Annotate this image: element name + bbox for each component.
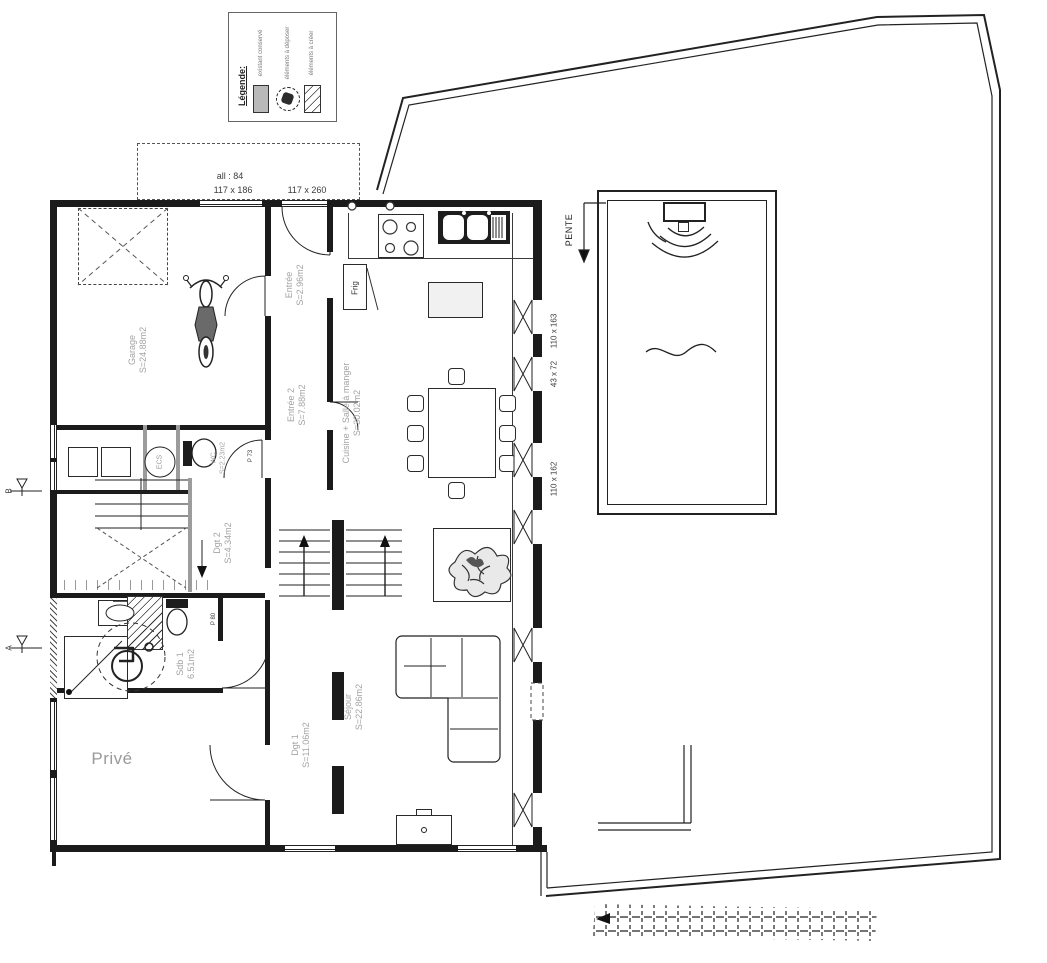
slope-label: PENTE xyxy=(564,214,574,247)
slope-arrow-icon xyxy=(579,203,606,262)
section-markers xyxy=(10,479,42,653)
tv-dot xyxy=(422,828,427,833)
pool-waves-icon xyxy=(646,222,718,355)
plan-vector-overlay xyxy=(0,0,1047,963)
terrain-boundary xyxy=(377,15,1000,896)
water-heater-label: ECS xyxy=(157,455,164,469)
private-label: Privé xyxy=(91,749,132,769)
shower-icon xyxy=(66,641,122,695)
sofa-icon xyxy=(396,636,500,762)
washbasin-bowl-icon xyxy=(106,601,134,621)
opening-dim-label: 117 x 260 xyxy=(288,185,327,195)
bath-toilet-icon xyxy=(166,599,188,635)
opening-dim-label: 117 x 186 xyxy=(214,185,253,195)
attic-height-label: all : 84 xyxy=(217,171,244,181)
section-label-b: B xyxy=(5,488,14,493)
door-ref-label: P 73 xyxy=(248,450,254,462)
room-label-sdb1: Sdb 16.51m2 xyxy=(175,649,198,679)
terrace-step-wall xyxy=(598,745,691,830)
main-stairs xyxy=(279,530,402,596)
room-label-entree2: Entrée 2S=7.88m2 xyxy=(286,384,309,425)
section-label-a: A xyxy=(5,645,14,650)
room-label-cuisine: Cuisine + Salle à mangerS=30.02m2 xyxy=(341,363,364,464)
plant-icon xyxy=(449,547,511,596)
right-wall-windows xyxy=(514,300,543,827)
hatched-strip xyxy=(593,904,877,941)
stove-burners-icon xyxy=(348,202,418,255)
basement-stairs xyxy=(95,478,207,588)
bowtie-window-icon xyxy=(514,300,532,827)
garage-dashed-x xyxy=(78,208,168,285)
motorcycle-icon xyxy=(184,276,229,368)
floor-plan-canvas: Légende: existant conservé éléments à dé… xyxy=(0,0,1047,963)
dashed-window xyxy=(531,683,543,720)
door-ref-label: P 80 xyxy=(211,613,217,625)
room-label-dgt1: Dgt 1S=11.06m2 xyxy=(290,722,313,768)
room-label-dgt2: Dgt 2S=4.34m2 xyxy=(212,522,235,563)
window-dim-label: 110 x 162 xyxy=(550,462,559,497)
fridge-door-line xyxy=(367,268,378,310)
room-label-wc: WCS=2.23m2 xyxy=(210,442,228,474)
wheelchair-icon xyxy=(97,623,165,691)
kitchen-sink-icon xyxy=(438,211,510,244)
fridge-label: Frig xyxy=(351,281,360,295)
window-dim-label: 43 x 72 xyxy=(550,361,559,387)
room-label-entree: EntréeS=2.96m2 xyxy=(284,264,307,305)
room-label-sejour: SéjourS=22.86m2 xyxy=(343,684,366,730)
window-dim-label: 110 x 163 xyxy=(550,314,559,349)
room-label-garage: GarageS=24.88m2 xyxy=(127,327,150,373)
